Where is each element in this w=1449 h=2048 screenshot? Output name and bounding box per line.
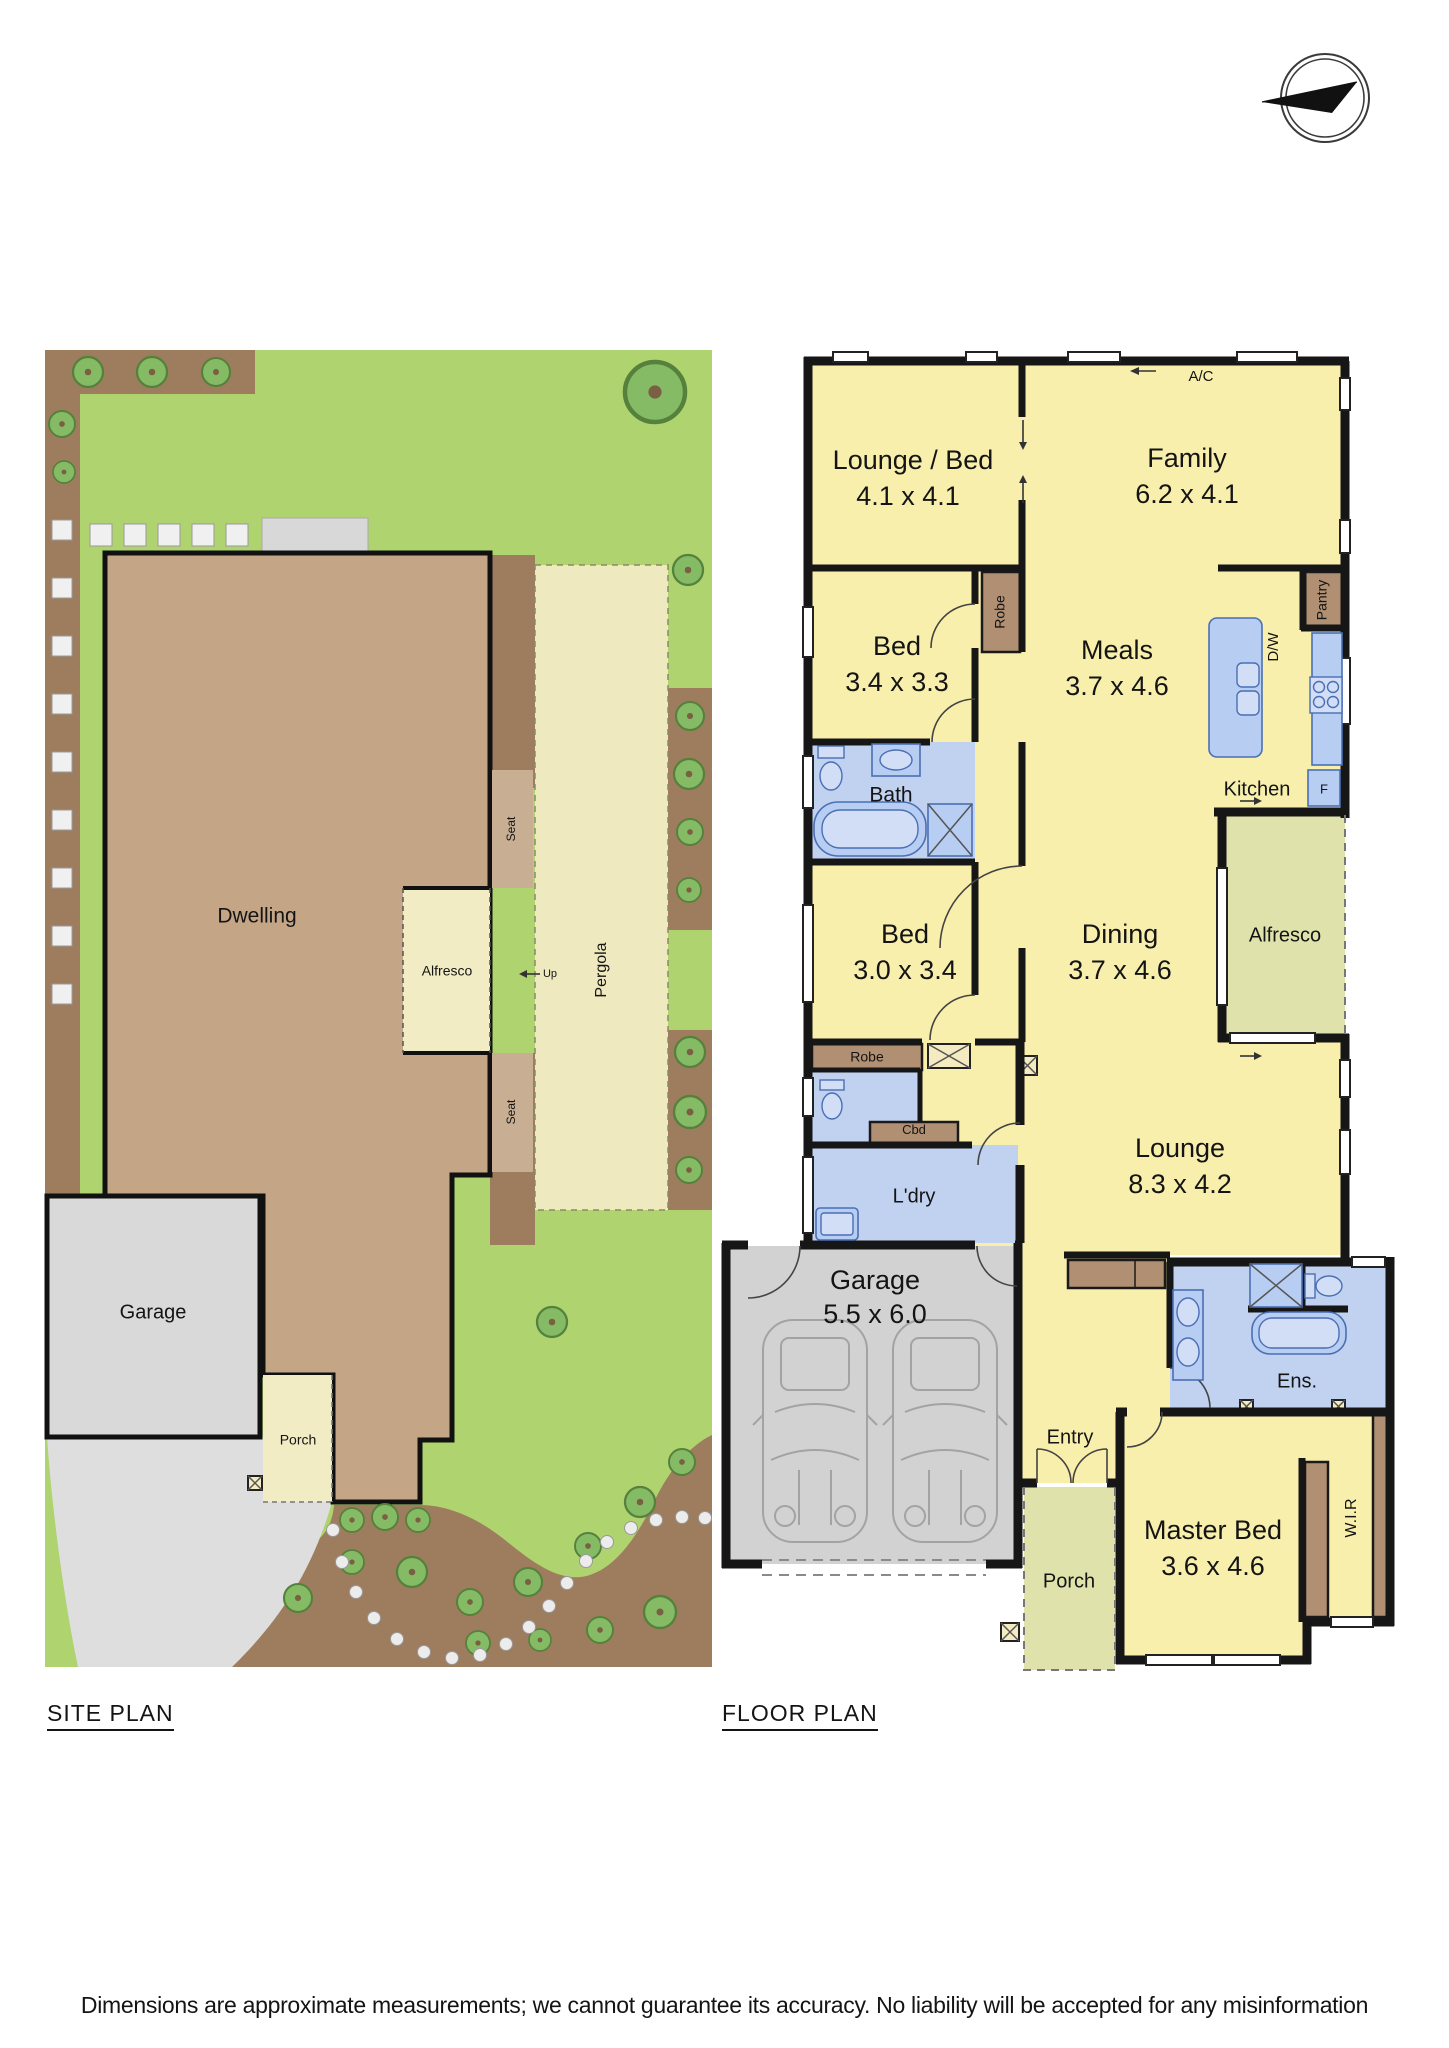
bed3-dims: 3.0 x 3.4 [853, 955, 957, 985]
ensuite-label: Ens. [1277, 1370, 1317, 1392]
seat-bottom-label: Seat [504, 1099, 518, 1124]
site-meter-box [248, 1476, 262, 1490]
ens-toilet [1305, 1274, 1315, 1298]
lounge-dims: 8.3 x 4.2 [1128, 1169, 1232, 1199]
meals-label: Meals [1081, 635, 1153, 665]
lounge-bed-dims: 4.1 x 4.1 [856, 481, 960, 511]
floor-plan: Lounge / Bed 4.1 x 4.1 Family 6.2 x 4.1 … [722, 352, 1394, 1670]
master-bed-dims: 3.6 x 4.6 [1161, 1551, 1265, 1581]
toilet-cistern [818, 746, 844, 758]
site-plan-title: SITE PLAN [47, 1700, 174, 1731]
site-garage-label: Garage [120, 1301, 187, 1323]
linen-box [928, 1044, 970, 1068]
pantry-label: Pantry [1314, 580, 1330, 620]
fp-alfresco-label: Alfresco [1249, 924, 1321, 946]
fp-porch-label: Porch [1043, 1570, 1095, 1592]
site-alfresco-label: Alfresco [422, 963, 473, 979]
bed2-dims: 3.4 x 3.3 [845, 667, 949, 697]
fridge-label: F [1320, 781, 1328, 796]
north-compass-icon [1262, 54, 1369, 142]
kitchen-label: Kitchen [1224, 778, 1291, 800]
meter-box [1001, 1623, 1019, 1641]
dining-dims: 3.7 x 4.6 [1068, 955, 1172, 985]
dining-label: Dining [1082, 919, 1159, 949]
fp-garage-label: Garage [830, 1265, 920, 1295]
toilet-bowl [820, 762, 842, 790]
robe1-label: Robe [992, 595, 1008, 629]
room-fills [726, 357, 1390, 1670]
bed2-label: Bed [873, 631, 921, 661]
site-garage: Garage [47, 1196, 260, 1437]
shed-pad [262, 518, 368, 554]
master-bed-label: Master Bed [1144, 1515, 1282, 1545]
floor-plan-title: FLOOR PLAN [722, 1700, 878, 1731]
pergola-label: Pergola [593, 942, 610, 997]
disclaimer-text: Dimensions are approximate measurements;… [0, 1992, 1449, 2019]
sink [1237, 663, 1259, 687]
bath-label: Bath [869, 784, 912, 807]
pergola: Pergola [535, 565, 668, 1210]
robe2-label: Robe [850, 1049, 884, 1065]
ac-label: A/C [1188, 368, 1213, 385]
fp-garage-dims: 5.5 x 6.0 [823, 1299, 927, 1329]
site-porch-label: Porch [280, 1432, 317, 1448]
wir-label: W.I.R [1343, 1498, 1360, 1537]
lounge-label: Lounge [1135, 1133, 1225, 1163]
page: Pergola Dwelling Seat Seat Alfresco Up [0, 0, 1449, 2048]
entry-label: Entry [1047, 1426, 1094, 1448]
plans-canvas: Pergola Dwelling Seat Seat Alfresco Up [0, 0, 1449, 2048]
site-plan: Pergola Dwelling Seat Seat Alfresco Up [45, 350, 712, 1667]
meals-dims: 3.7 x 4.6 [1065, 671, 1169, 701]
dishwasher-label: D/W [1265, 632, 1282, 662]
cooktop [1310, 677, 1342, 713]
family-dims: 6.2 x 4.1 [1135, 479, 1239, 509]
bed3-label: Bed [881, 919, 929, 949]
up-label: Up [543, 968, 557, 980]
seat-top-label: Seat [504, 816, 518, 841]
lounge-bed-label: Lounge / Bed [833, 445, 994, 475]
cbd-label: Cbd [902, 1122, 926, 1137]
family-label: Family [1147, 443, 1227, 473]
laundry-label: L'dry [893, 1185, 936, 1207]
dwelling-label: Dwelling [217, 905, 296, 928]
